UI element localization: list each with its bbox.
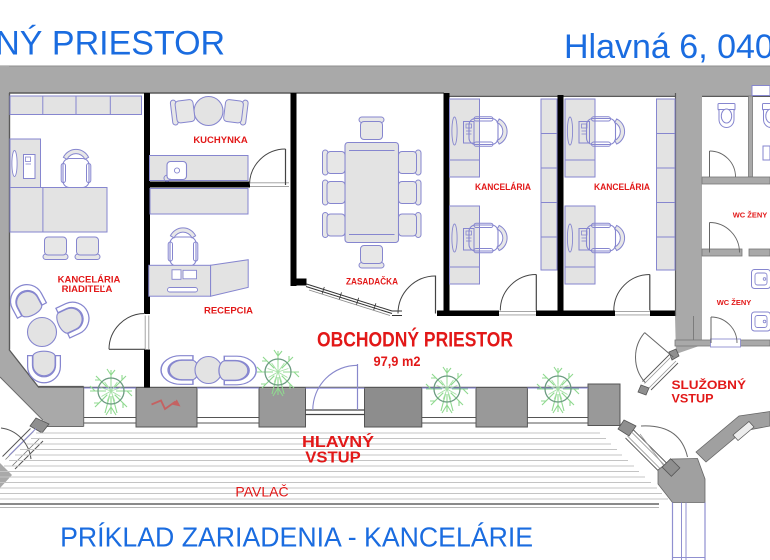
svg-text:SLUŽOBNÝ: SLUŽOBNÝ — [672, 377, 747, 392]
svg-text:RIADITEĽA: RIADITEĽA — [62, 284, 113, 295]
svg-text:OBCHODNÝ PRIESTOR: OBCHODNÝ PRIESTOR — [0, 25, 225, 63]
svg-text:ZASADAČKA: ZASADAČKA — [346, 276, 398, 288]
svg-text:KUCHYNKA: KUCHYNKA — [193, 135, 248, 146]
svg-text:VSTUP: VSTUP — [305, 450, 361, 467]
svg-text:KANCELÁRIA: KANCELÁRIA — [475, 181, 531, 192]
svg-text:Hlavná 6, 040 01: Hlavná 6, 040 01 — [564, 28, 770, 66]
svg-text:KANCELÁRIA: KANCELÁRIA — [594, 181, 650, 192]
svg-text:WC ŽENY: WC ŽENY — [717, 298, 752, 307]
svg-text:WC ŽENY: WC ŽENY — [733, 211, 768, 220]
svg-text:RECEPCIA: RECEPCIA — [204, 306, 253, 317]
svg-text:OBCHODNÝ PRIESTOR: OBCHODNÝ PRIESTOR — [317, 328, 513, 352]
svg-text:PAVLAČ: PAVLAČ — [235, 484, 288, 500]
svg-text:HLAVNÝ: HLAVNÝ — [302, 432, 375, 451]
svg-text:VSTUP: VSTUP — [672, 391, 714, 405]
svg-text:97,9 m2: 97,9 m2 — [374, 353, 421, 369]
svg-text:PRÍKLAD ZARIADENIA - KANCELÁRI: PRÍKLAD ZARIADENIA - KANCELÁRIE — [60, 522, 533, 553]
